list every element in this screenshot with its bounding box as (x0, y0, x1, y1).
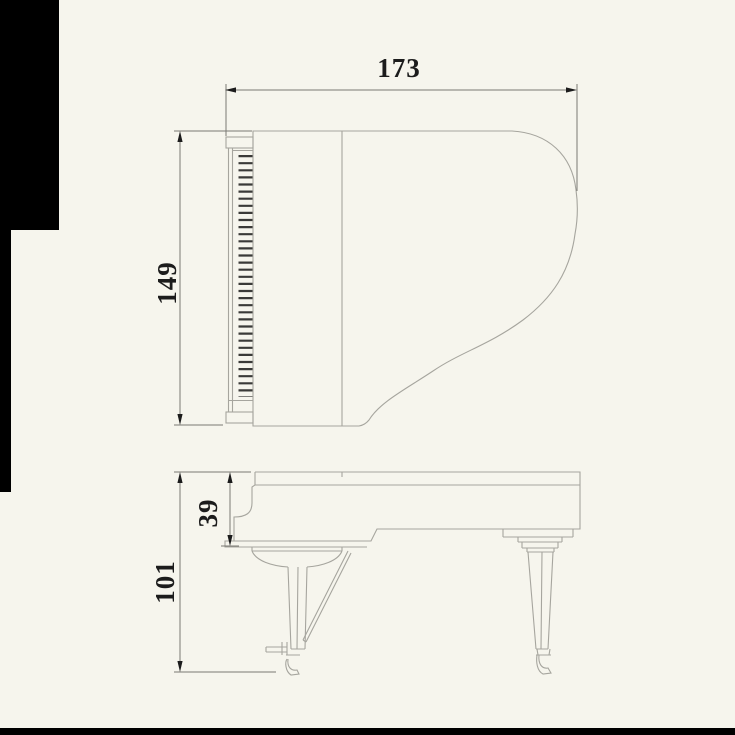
top-view (226, 131, 577, 426)
length-ext-lines (226, 84, 577, 191)
total-height-ext-lines (174, 472, 276, 672)
key-front-lines (229, 148, 254, 412)
top-view-body-outline (253, 131, 577, 426)
width-dim-label: 149 (151, 241, 183, 325)
edge-mask-left-strip (0, 230, 11, 492)
rear-caster (536, 649, 551, 674)
length-dim-label: 173 (357, 52, 441, 84)
width-ext-lines (174, 131, 252, 425)
keyboard-block-bottom (226, 412, 253, 423)
front-caster (286, 655, 300, 675)
edge-mask-bottom (0, 728, 735, 735)
cheek-profile (234, 472, 255, 541)
line-art (0, 0, 735, 735)
rear-leg (503, 529, 573, 649)
case-height-dim-label: 39 (192, 471, 224, 555)
lyre-brace (303, 551, 351, 642)
pedal (266, 642, 287, 655)
dimension-lines (174, 84, 577, 672)
side-view-case-outline (225, 472, 580, 547)
keyboard-block-top (226, 137, 253, 148)
total-height-dim-label: 101 (149, 540, 181, 624)
dimension-arrowheads (177, 87, 577, 672)
side-view (225, 472, 580, 675)
edge-mask-top-left (0, 0, 59, 230)
piano-dimension-diagram: 173 149 39 101 (0, 0, 735, 735)
